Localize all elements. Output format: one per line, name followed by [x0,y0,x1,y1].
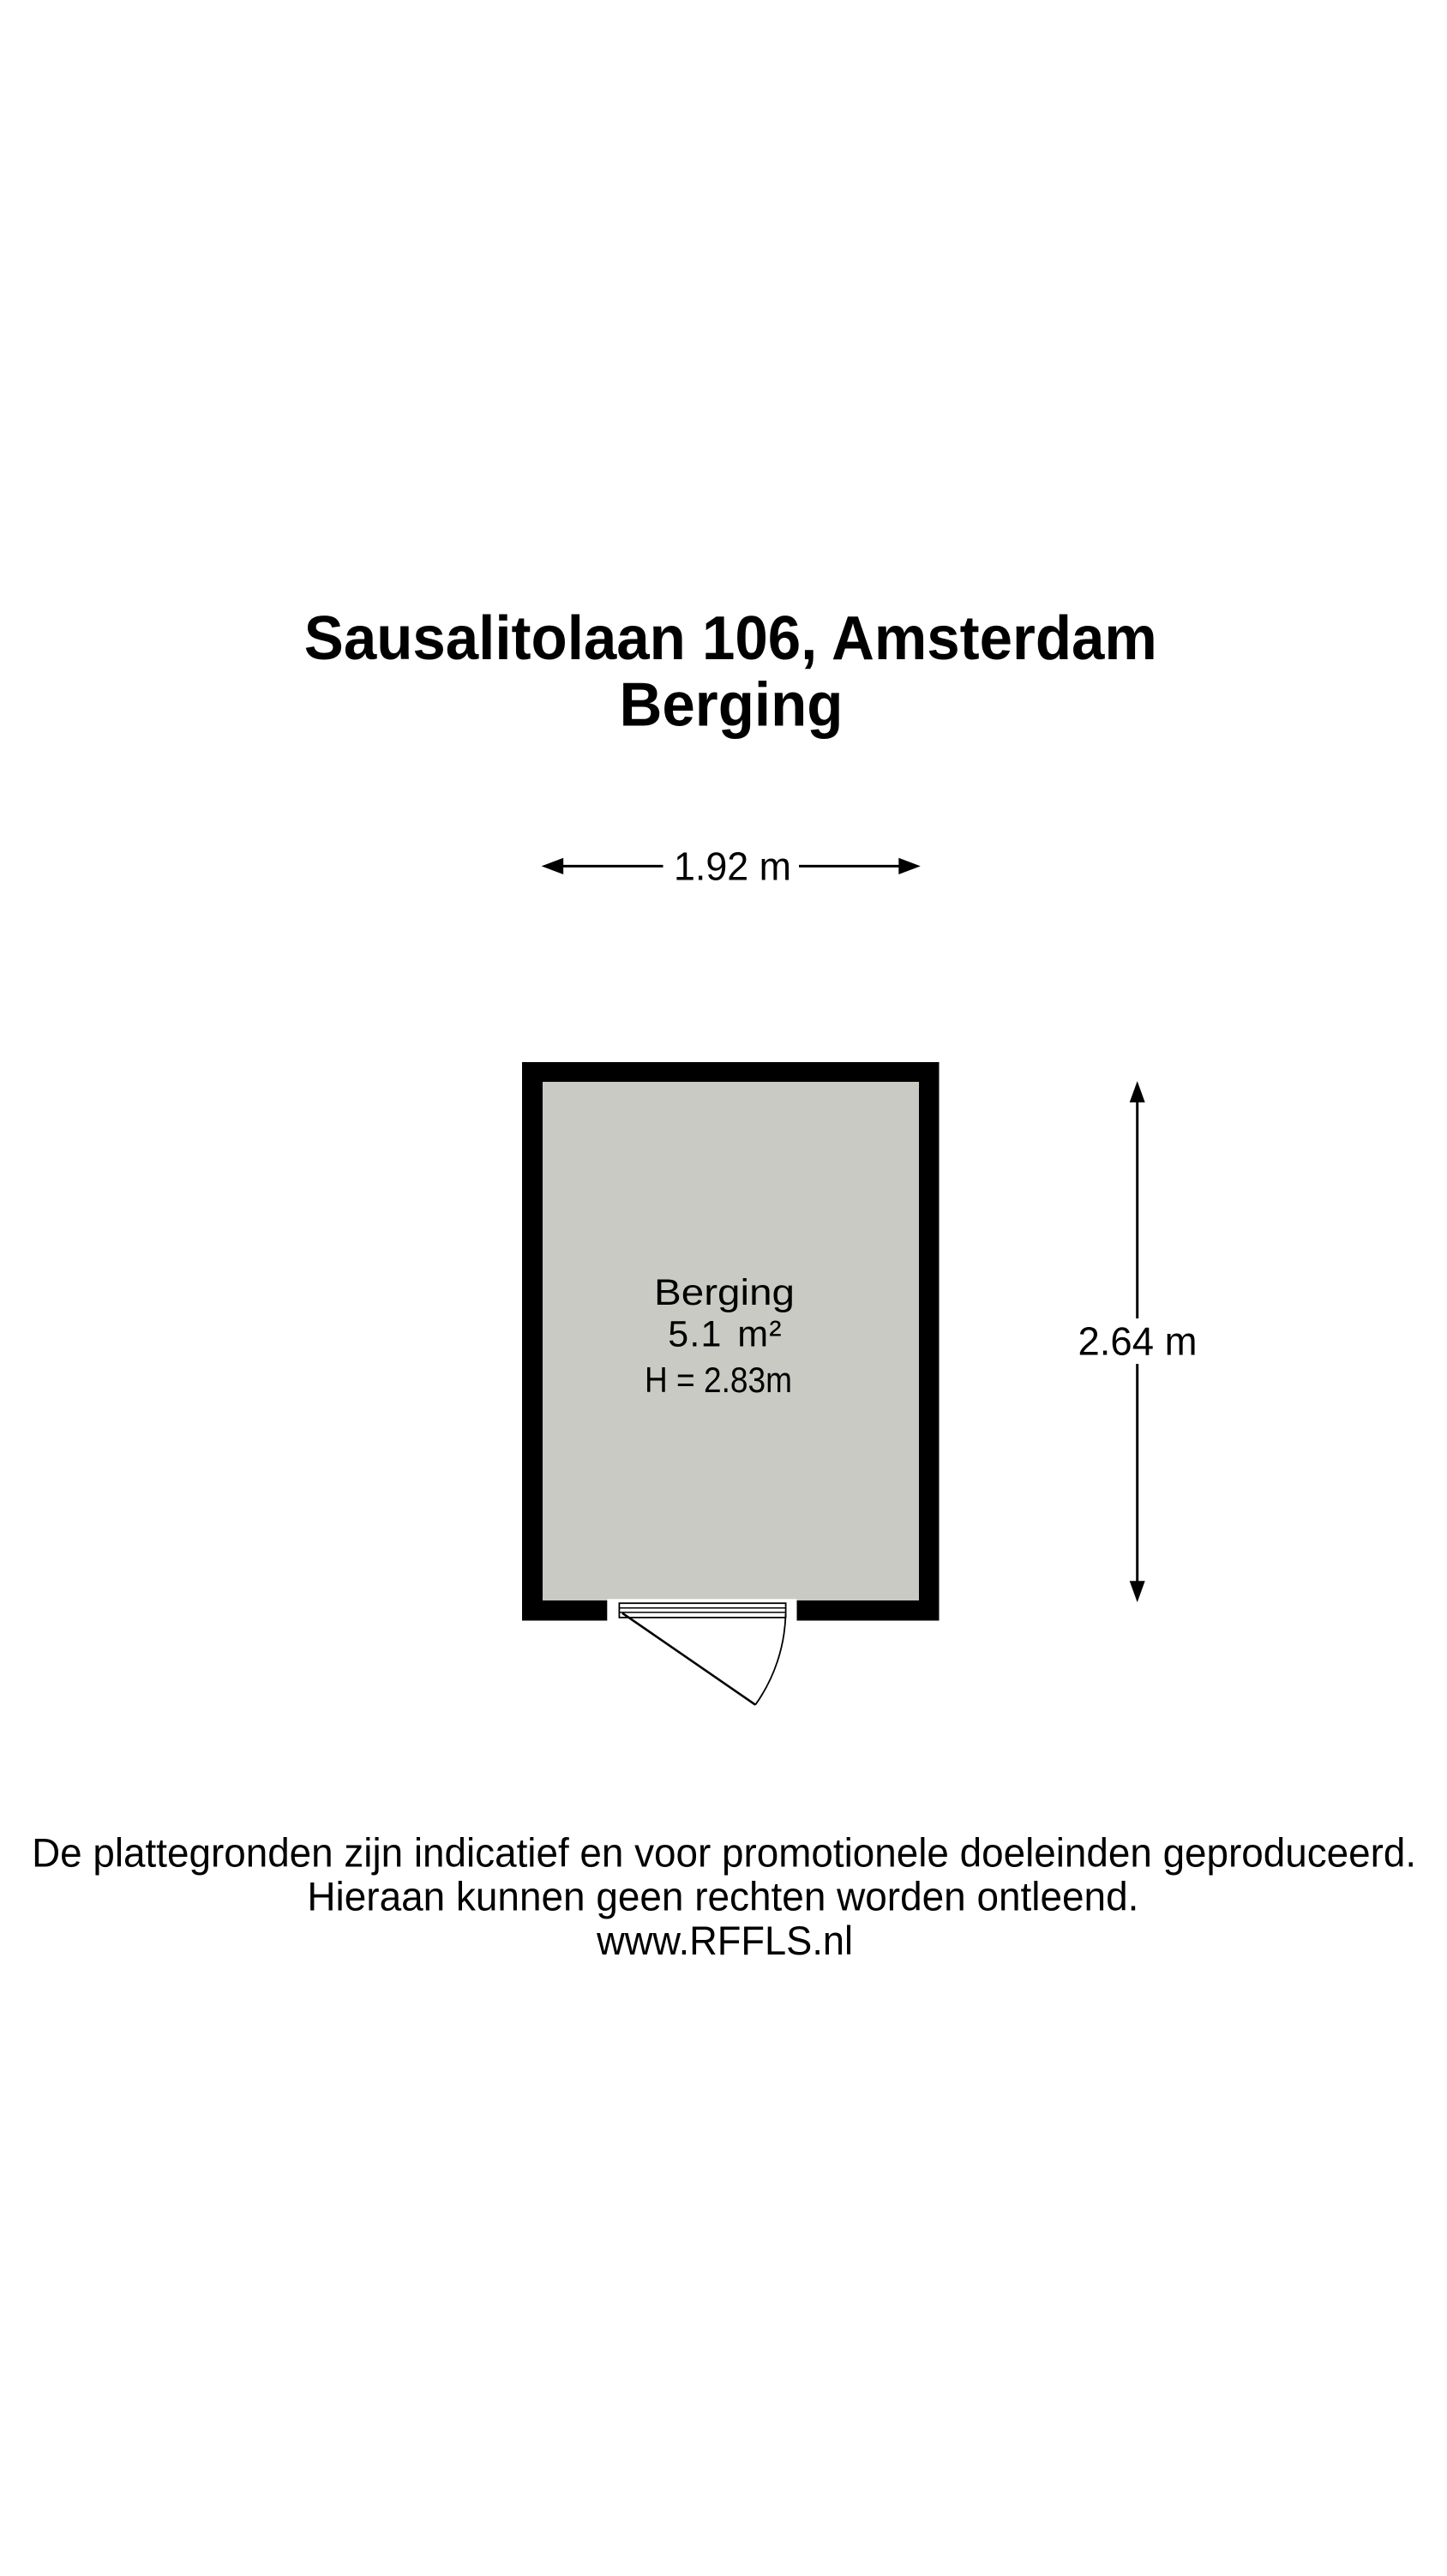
svg-text:1.92 m: 1.92 m [674,844,791,889]
svg-text:Berging: Berging [654,1272,795,1313]
svg-text:5.1 m²: 5.1 m² [668,1314,783,1355]
svg-text:2.64 m: 2.64 m [1078,1319,1198,1364]
svg-text:Sausalitolaan 106, Amsterdam: Sausalitolaan 106, Amsterdam [304,604,1157,673]
svg-text:H = 2.83m: H = 2.83m [645,1360,792,1400]
svg-text:De plattegronden zijn indicati: De plattegronden zijn indicatief en voor… [32,1829,1416,1875]
svg-text:Hieraan kunnen geen rechten wo: Hieraan kunnen geen rechten worden ontle… [307,1873,1138,1918]
svg-text:Berging: Berging [620,671,844,740]
svg-text:www.RFFLS.nl: www.RFFLS.nl [596,1918,853,1963]
